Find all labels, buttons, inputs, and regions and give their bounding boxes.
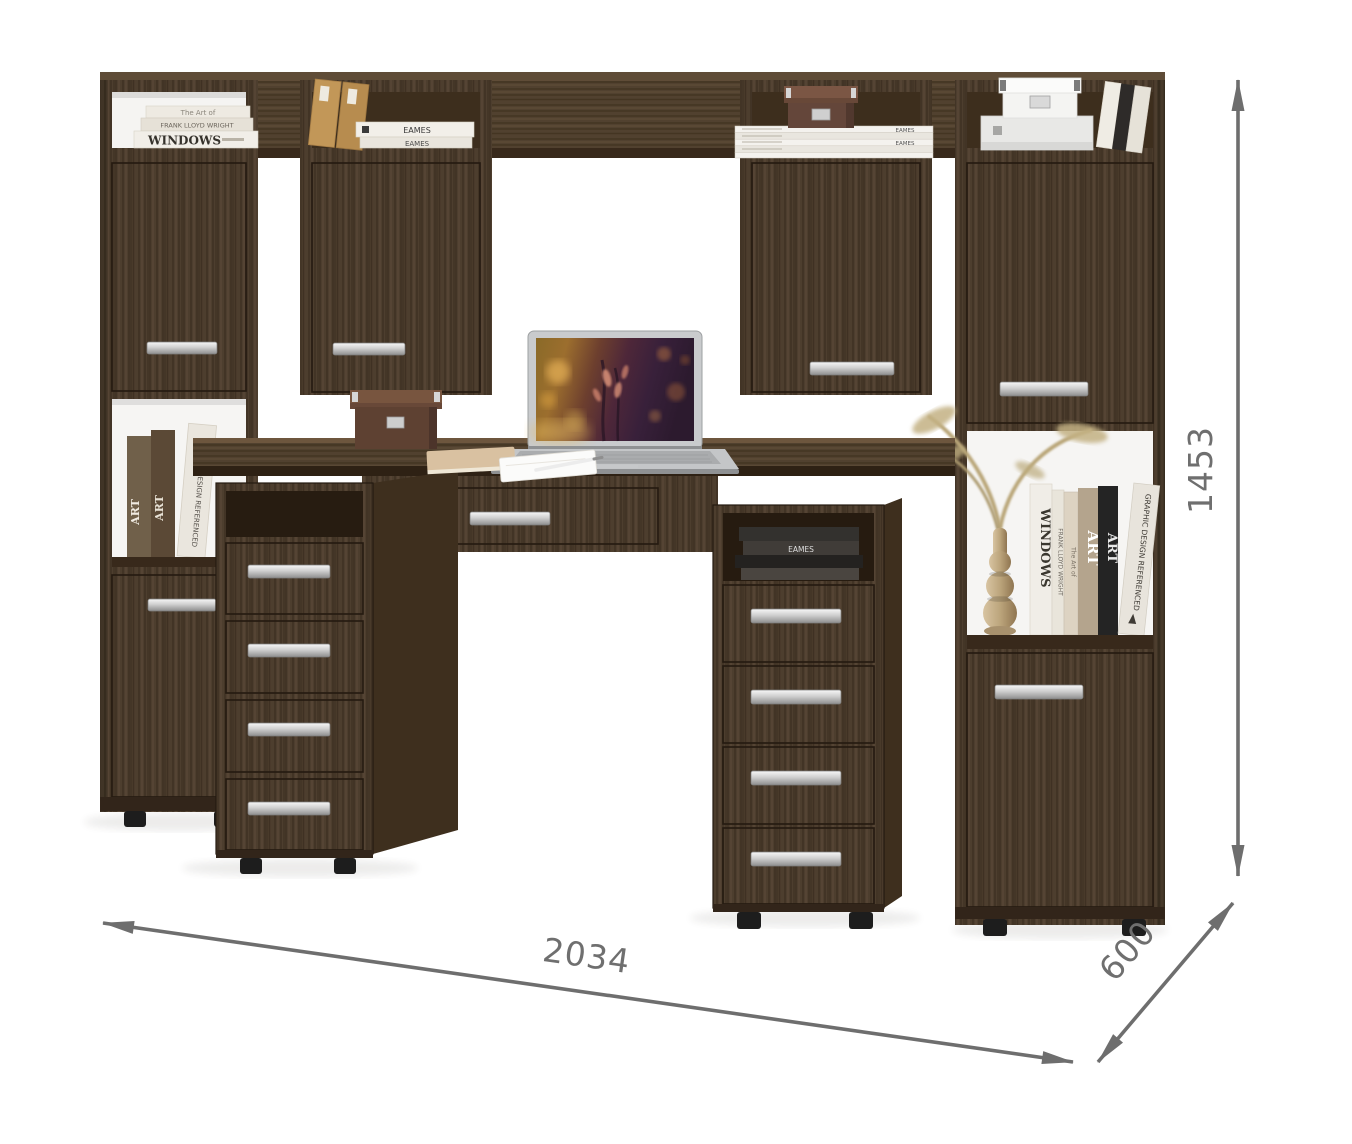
laptop-touchpad — [598, 465, 638, 468]
box-metal-clip — [851, 88, 856, 98]
cabinet-foot — [240, 858, 262, 874]
box-metal-clip — [434, 392, 440, 402]
book-spine-label: WINDOWS — [1037, 507, 1052, 587]
bokeh-light — [649, 410, 661, 422]
vase-body — [989, 551, 1011, 573]
pedestal-side-panel — [373, 470, 458, 854]
book-logo-mark — [362, 126, 369, 133]
door-handle — [333, 343, 405, 355]
right-inner-tower: EAMES EAMES — [735, 80, 933, 395]
door-handle — [147, 342, 217, 354]
product-render-stage: The Art of FRANK LLOYD WRIGHT WINDOWS AR… — [0, 0, 1352, 1144]
eames-books-flat: EAMES EAMES — [356, 122, 474, 148]
book-spine-label: The Art of — [1070, 546, 1077, 578]
small-box-lid — [999, 78, 1081, 93]
box-label-holder — [1030, 96, 1050, 108]
desk-wall-unit-render: The Art of FRANK LLOYD WRIGHT WINDOWS AR… — [0, 0, 1352, 1144]
box-clasp — [993, 126, 1002, 135]
box-lid-lip — [784, 98, 858, 103]
pedestal-base — [216, 850, 373, 858]
drawer-handle — [248, 723, 330, 736]
bokeh-light — [680, 355, 690, 365]
box-side-shade — [846, 103, 854, 128]
magazine-stack: EAMES EAMES — [735, 126, 933, 158]
flat-box-shade — [981, 142, 1093, 150]
book-spine-label: ART — [153, 494, 166, 521]
book-art-brown — [127, 436, 151, 557]
leaning-books-top-right — [1096, 81, 1151, 153]
book-spine-label: The Art of — [180, 109, 216, 117]
left-upper-door — [112, 163, 246, 391]
cabinet-foot — [849, 912, 873, 929]
box-label-holder — [387, 417, 404, 428]
right-drawer-pedestal: EAMES — [713, 498, 902, 929]
drawer-handle — [751, 852, 841, 866]
dimension-width-label: 2034 — [540, 930, 633, 981]
box-label-holder — [812, 109, 830, 120]
brown-storage-box — [784, 86, 858, 128]
bokeh-light — [540, 392, 556, 408]
book — [741, 568, 859, 580]
bokeh-light — [657, 347, 671, 361]
stacked-books-left-top: The Art of FRANK LLOYD WRIGHT WINDOWS — [134, 106, 258, 148]
magazine-spine-label: EAMES — [896, 141, 915, 147]
cabinet-foot — [737, 912, 761, 929]
left-inner-tower: EAMES EAMES — [300, 79, 492, 395]
door-handle — [995, 685, 1083, 699]
left-cabinet-edge-shade — [100, 80, 108, 812]
drawer — [723, 585, 874, 662]
box-metal-clip — [352, 392, 358, 402]
book — [739, 527, 859, 541]
drawer-handle — [751, 609, 841, 623]
box-metal-clip — [786, 88, 791, 98]
magazine-file-label — [319, 86, 330, 102]
book-spine-label: WINDOWS — [147, 134, 221, 148]
book-art-dark — [151, 430, 175, 557]
book-spine-label: EAMES — [788, 545, 814, 554]
drawer-handle — [751, 771, 841, 785]
book-spine-label: FRANK LLOYD WRIGHT — [1057, 528, 1064, 596]
vase-base — [984, 626, 1016, 636]
box-side-shade — [429, 407, 437, 449]
glow — [530, 420, 590, 444]
pedestal-base — [713, 904, 884, 912]
right-tall-cabinet: WINDOWS FRANK LLOYD WRIGHT The Art of AR… — [909, 78, 1165, 936]
shelf-inner-shadow — [112, 92, 246, 98]
cabinet-foot — [983, 919, 1007, 936]
book-spine-label: FRANK LLOYD WRIGHT — [160, 122, 233, 130]
door-handle — [148, 599, 216, 611]
drawer — [723, 666, 874, 743]
drawer-handle — [248, 644, 330, 657]
left-drawer-pedestal — [216, 470, 458, 874]
brown-box-on-desk — [350, 390, 442, 449]
dark-books-in-niche: EAMES — [735, 527, 863, 580]
vase-ring-shadow — [987, 596, 1013, 602]
laptop — [491, 331, 739, 474]
niche-inner-shadow — [112, 399, 246, 405]
magazine-file-label — [347, 89, 358, 105]
bokeh-light — [667, 383, 685, 401]
door-handle — [810, 362, 894, 375]
book-spine-label: ART — [129, 498, 142, 525]
drawer-handle — [248, 802, 330, 815]
pedestal-side-panel — [884, 498, 902, 908]
dimension-height-label: 1453 — [1181, 426, 1220, 514]
magazine-spine-label: EAMES — [896, 128, 915, 134]
bokeh-light — [546, 360, 570, 384]
box-metal-corner — [1074, 80, 1080, 91]
cabinet-foot — [124, 811, 146, 827]
vase-ring-shadow — [989, 571, 1011, 576]
right-middle-shelf-floor — [967, 635, 1153, 649]
book-spine-label: ART — [1104, 532, 1119, 564]
drawer-handle — [470, 512, 550, 525]
magazine — [735, 152, 933, 158]
book-small-print — [222, 138, 244, 141]
book-spine-label: EAMES — [405, 140, 430, 148]
book-spine-label: EAMES — [403, 126, 431, 135]
drawer — [226, 543, 363, 614]
upper-door — [312, 163, 480, 392]
standing-books-right-middle: WINDOWS FRANK LLOYD WRIGHT The Art of AR… — [1030, 483, 1160, 636]
upper-door — [752, 163, 920, 392]
box-metal-corner — [1000, 80, 1006, 91]
pedestal-open-niche — [226, 491, 363, 537]
door-handle — [1000, 382, 1088, 396]
drawer-handle — [751, 690, 841, 704]
drawer — [723, 747, 874, 824]
drawer-handle — [248, 565, 330, 578]
pen-tip — [594, 457, 602, 459]
cabinet-foot — [334, 858, 356, 874]
book — [735, 555, 863, 568]
